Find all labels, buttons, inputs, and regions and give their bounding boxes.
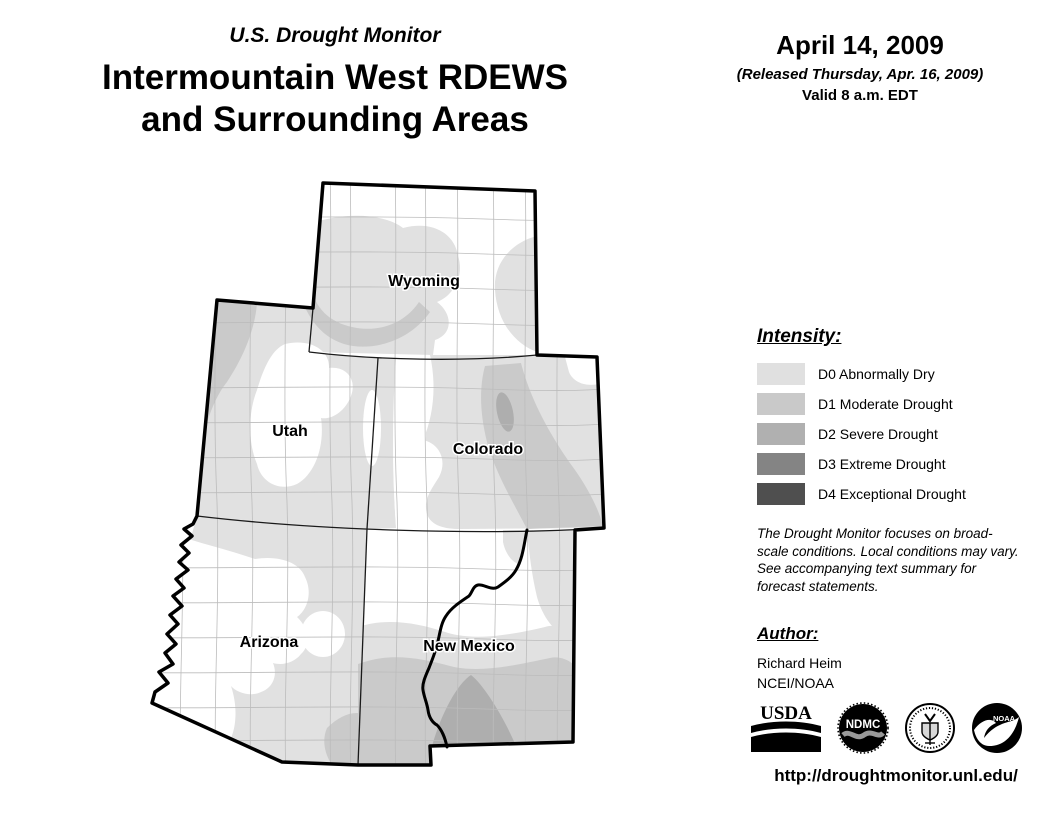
state-label-arizona: Arizona	[240, 634, 299, 651]
ndmc-logo: NDMC	[837, 702, 889, 754]
ndmc-logo-text: NDMC	[846, 719, 881, 731]
d1-label: D1 Moderate Drought	[818, 396, 953, 412]
d1-swatch	[757, 393, 805, 415]
no-drought-colorado-center	[393, 360, 426, 526]
d0-label: D0 Abnormally Dry	[818, 366, 935, 382]
d3-swatch	[757, 453, 805, 475]
legend-row-d4: D4 Exceptional Drought	[757, 483, 1047, 505]
state-label-utah: Utah	[272, 423, 308, 440]
legend-row-d2: D2 Severe Drought	[757, 423, 1047, 445]
author-block: Author: Richard Heim NCEI/NOAA	[757, 624, 842, 694]
drought-map: Wyoming Utah Colorado Arizona New Mexico	[85, 172, 645, 782]
legend-row-d3: D3 Extreme Drought	[757, 453, 1047, 475]
author-name: Richard Heim	[757, 653, 842, 673]
title-block: U.S. Drought Monitor Intermountain West …	[20, 24, 650, 141]
drought-monitor-page: { "header": { "kicker": "U.S. Drought Mo…	[0, 0, 1056, 816]
disclaimer-text: The Drought Monitor focuses on broad-sca…	[757, 525, 1019, 595]
valid-time: Valid 8 a.m. EDT	[700, 87, 1020, 104]
kicker-title: U.S. Drought Monitor	[20, 24, 650, 48]
legend-row-d1: D1 Moderate Drought	[757, 393, 1047, 415]
commerce-seal-logo	[904, 702, 956, 754]
legend-row-d0: D0 Abnormally Dry	[757, 363, 1047, 385]
drought-map-svg: Wyoming Utah Colorado Arizona New Mexico	[85, 172, 645, 782]
page-title: Intermountain West RDEWS and Surrounding…	[20, 57, 650, 141]
d2-label: D2 Severe Drought	[818, 426, 938, 442]
d3-label: D3 Extreme Drought	[818, 456, 946, 472]
author-heading: Author:	[757, 624, 842, 644]
date-block: April 14, 2009 (Released Thursday, Apr. …	[700, 30, 1020, 104]
drought-area-d0-wyoming-east	[495, 236, 537, 352]
agency-logos: USDA NDMC NOAA	[750, 702, 1038, 754]
no-drought-arizona-eastgap	[301, 611, 345, 657]
state-label-wyoming: Wyoming	[388, 273, 460, 290]
map-date: April 14, 2009	[700, 30, 1020, 61]
d4-label: D4 Exceptional Drought	[818, 486, 966, 502]
d2-swatch	[757, 423, 805, 445]
legend-heading: Intensity:	[757, 326, 1047, 348]
page-title-line1: Intermountain West RDEWS	[20, 57, 650, 99]
droughtmonitor-url: http://droughtmonitor.unl.edu/	[746, 766, 1046, 786]
released-date: (Released Thursday, Apr. 16, 2009)	[700, 66, 1020, 83]
state-label-colorado: Colorado	[453, 441, 523, 458]
usda-logo: USDA	[750, 702, 822, 754]
page-title-line2: and Surrounding Areas	[20, 99, 650, 141]
d0-swatch	[757, 363, 805, 385]
noaa-logo: NOAA	[971, 702, 1023, 754]
drought-area-d0-newmexico-northeast	[527, 530, 573, 640]
d4-swatch	[757, 483, 805, 505]
intensity-legend: Intensity: D0 Abnormally Dry D1 Moderate…	[757, 326, 1047, 513]
author-org: NCEI/NOAA	[757, 673, 842, 693]
usda-logo-text: USDA	[760, 703, 812, 724]
state-label-new-mexico: New Mexico	[423, 638, 515, 655]
